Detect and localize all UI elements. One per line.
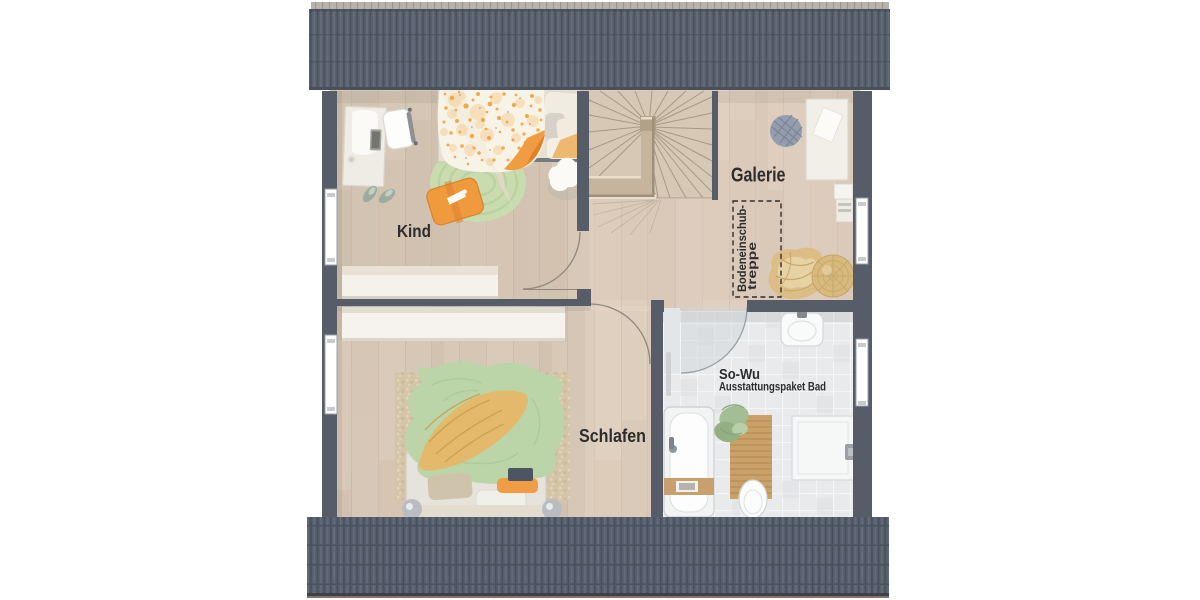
svg-text:Galerie: Galerie bbox=[731, 165, 786, 187]
svg-text:Ausstattungspaket Bad: Ausstattungspaket Bad bbox=[719, 382, 826, 394]
svg-text:Kind: Kind bbox=[397, 221, 431, 241]
svg-text:treppe: treppe bbox=[747, 242, 759, 290]
svg-text:Schlafen: Schlafen bbox=[579, 425, 646, 446]
